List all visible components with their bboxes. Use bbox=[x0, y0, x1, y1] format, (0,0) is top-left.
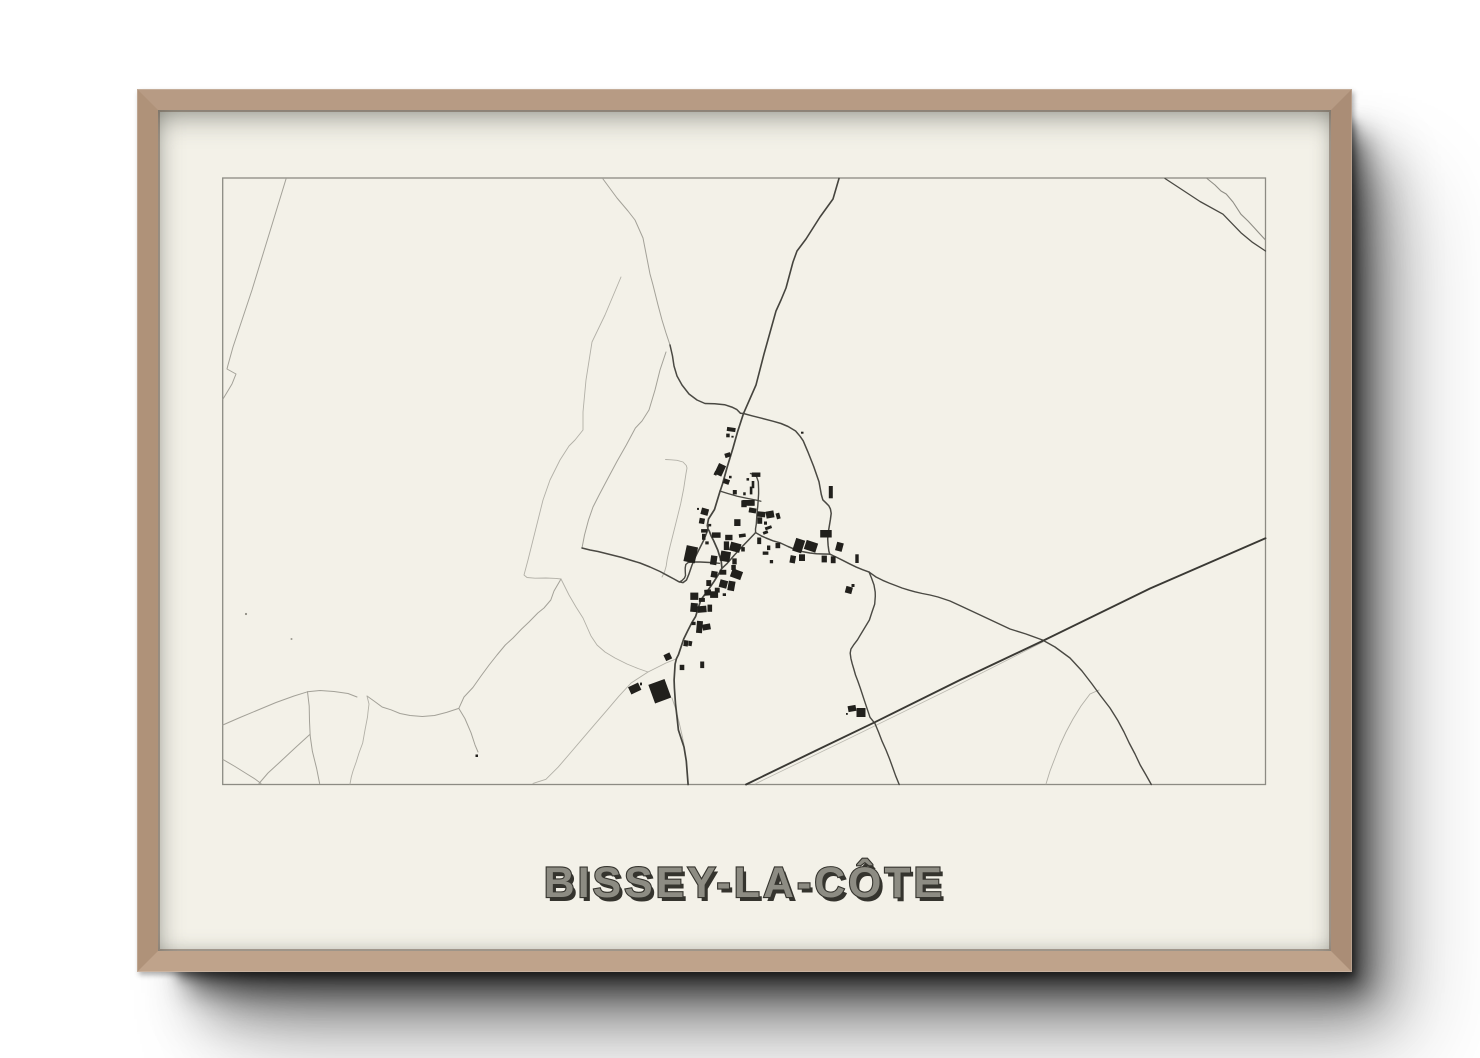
svg-text:BISSEY-LA-CÔTE: BISSEY-LA-CÔTE bbox=[544, 858, 945, 907]
